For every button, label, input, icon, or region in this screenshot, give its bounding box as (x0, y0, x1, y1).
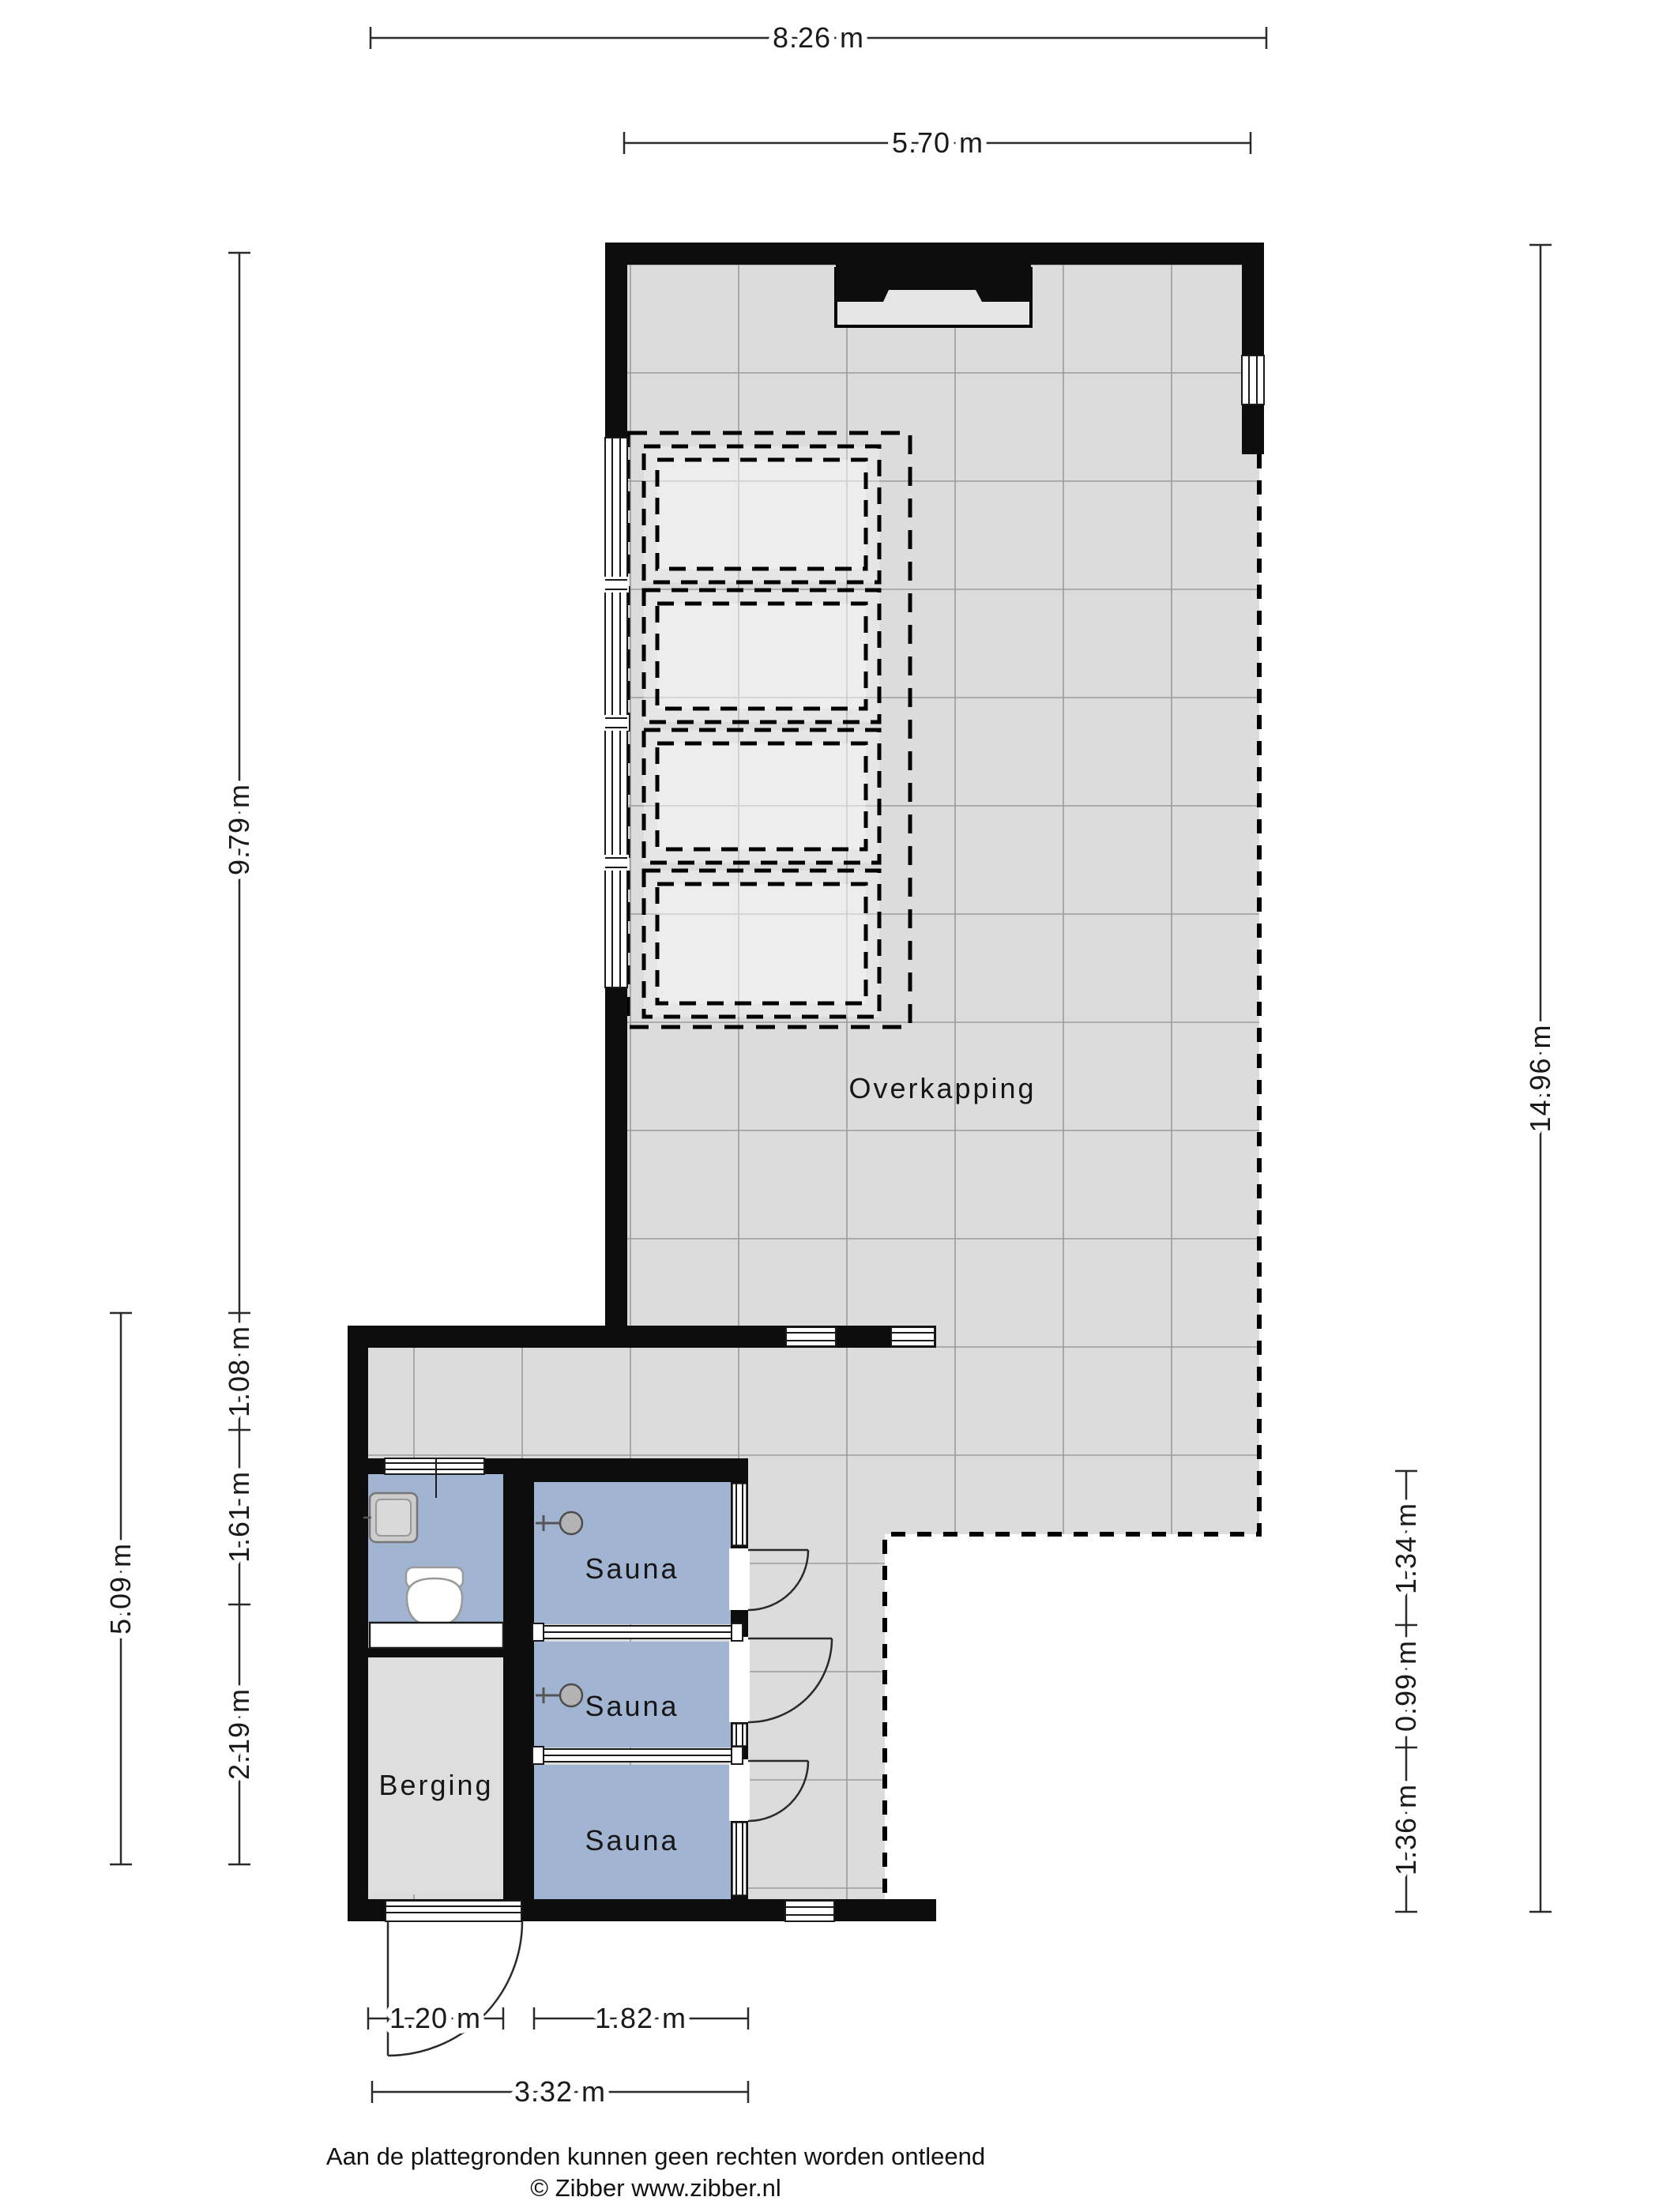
dim-label-annex-toilet: 1.61 m (223, 1471, 255, 1563)
hall-south-window (785, 1901, 834, 1921)
hall-north-window-2 (891, 1327, 935, 1346)
room-label-sauna-2: Sauna (585, 1690, 679, 1722)
dim-label-sauna-bottom: 1.36 m (1390, 1784, 1422, 1875)
room-label-berging: Berging (378, 1769, 493, 1801)
skylight-box-4-inner (657, 884, 866, 1003)
dim-overall-width: 8.26 m (371, 21, 1266, 54)
sauna-divider-1 (532, 1623, 743, 1641)
top-wall (605, 243, 1264, 265)
room-label-overkapping: Overkapping (848, 1072, 1036, 1104)
east-window (1242, 355, 1264, 404)
dim-label-overkapping-width: 5.70 m (892, 126, 984, 159)
floorplan-page: Overkapping Sauna Sauna Sauna Berging 8.… (0, 0, 1659, 2212)
dim-label-annex-left-total: 5.09 m (104, 1543, 137, 1635)
footer-disclaimer: Aan de plattegronden kunnen geen rechten… (326, 2142, 985, 2170)
sauna-top-wall (522, 1458, 748, 1482)
dim-label-right-total-height: 14.96 m (1524, 1024, 1556, 1132)
left-wall-lower (605, 987, 627, 1348)
sauna-2-window (732, 1724, 747, 1746)
dim-label-annex-berging: 2.19 m (223, 1688, 255, 1780)
dim-overkapping-width: 5.70 m (624, 126, 1251, 159)
dim-label-annex-total-width: 3.32 m (514, 2075, 606, 2108)
annex-top-wall (348, 1326, 936, 1348)
dim-bottom-total: 3.32 m (372, 2075, 748, 2108)
hall-north-window-1 (786, 1327, 836, 1346)
skylight-box-2-inner (657, 604, 866, 709)
footer-copyright: © Zibber www.zibber.nl (530, 2174, 781, 2202)
dim-annex-left-segments: 1.08 m 1.61 m 2.19 m (223, 1313, 255, 1864)
roof-skylight-outlines (628, 433, 910, 1027)
skylight-box-3-inner (657, 743, 866, 849)
dim-left-upper-height: 9.79 m (223, 253, 255, 1313)
footer: Aan de plattegronden kunnen geen rechten… (326, 2142, 985, 2202)
dim-label-sauna-middle: 0.99 m (1390, 1640, 1422, 1732)
annex-left-wall (348, 1326, 368, 1921)
dim-label-overall-width: 8.26 m (773, 21, 864, 54)
toilet-bench (370, 1623, 503, 1648)
dim-label-left-upper-height: 9.79 m (223, 784, 255, 875)
west-window (604, 438, 629, 987)
right-wall-upper (1242, 243, 1264, 355)
room-label-sauna-1: Sauna (585, 1552, 679, 1585)
dim-bottom-segments: 1.20 m 1.82 m (368, 2002, 748, 2034)
right-wall-lower (1242, 404, 1264, 454)
dim-right-total-height: 14.96 m (1524, 245, 1556, 1912)
sauna-3-window (732, 1823, 747, 1895)
dim-label-sauna-top: 1.34 m (1390, 1503, 1422, 1594)
sink-icon (363, 1493, 417, 1542)
dim-label-annex-corridor: 1.08 m (223, 1326, 255, 1417)
berging-sauna-wall (503, 1458, 534, 1899)
dim-label-berging-width: 1.20 m (389, 2002, 481, 2034)
left-wall-upper (605, 243, 627, 438)
sauna-1-window (732, 1484, 747, 1545)
room-label-sauna-3: Sauna (585, 1824, 679, 1856)
floorplan-canvas: Overkapping Sauna Sauna Sauna Berging 8.… (0, 0, 1659, 2212)
dim-sauna-segments: 1.34 m 0.99 m 1.36 m (1390, 1471, 1422, 1912)
skylight-box-1-inner (657, 460, 866, 569)
toilet-icon (406, 1567, 463, 1626)
dim-label-sauna-width: 1.82 m (595, 2002, 687, 2034)
sauna-divider-2 (532, 1747, 743, 1764)
dim-annex-left-total: 5.09 m (104, 1313, 137, 1864)
toilet-berging-wall (368, 1648, 534, 1657)
